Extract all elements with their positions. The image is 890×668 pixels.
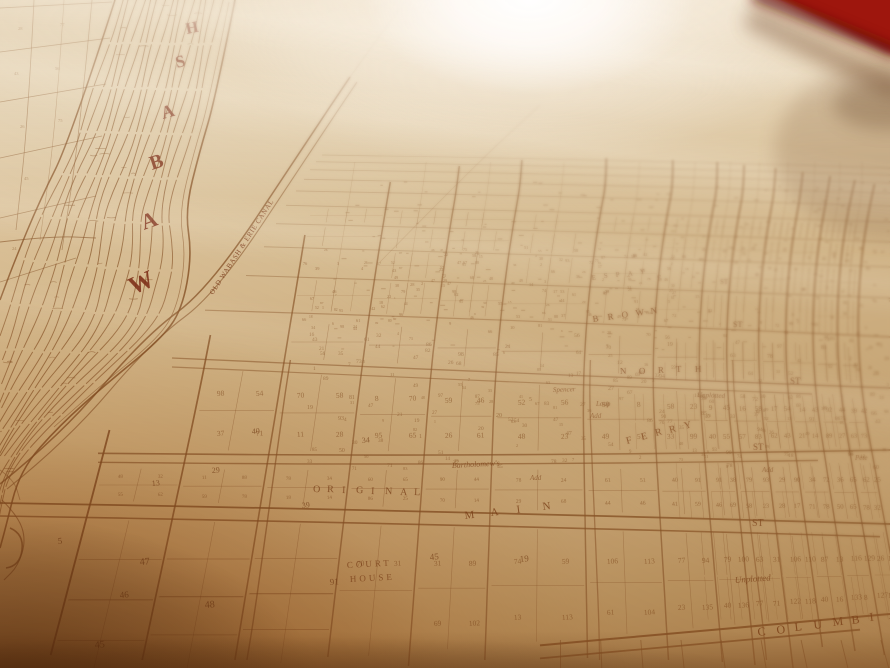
svg-text:Bartholomew's: Bartholomew's xyxy=(452,459,500,470)
svg-text:1: 1 xyxy=(313,366,316,372)
svg-text:6: 6 xyxy=(758,326,760,331)
svg-text:32: 32 xyxy=(874,503,882,512)
svg-text:40: 40 xyxy=(724,600,732,610)
svg-text:N: N xyxy=(542,500,551,513)
svg-text:51: 51 xyxy=(598,247,602,251)
svg-text:52: 52 xyxy=(873,250,877,254)
svg-text:E: E xyxy=(640,431,649,443)
svg-text:63: 63 xyxy=(546,381,550,385)
svg-text:81: 81 xyxy=(830,336,836,342)
svg-text:27: 27 xyxy=(432,410,438,416)
svg-text:34: 34 xyxy=(701,452,706,457)
svg-text:21: 21 xyxy=(397,412,403,418)
svg-text:74: 74 xyxy=(624,255,628,259)
svg-text:94: 94 xyxy=(757,427,763,433)
svg-text:40: 40 xyxy=(821,594,829,604)
svg-text:54: 54 xyxy=(462,386,466,390)
svg-text:93: 93 xyxy=(339,309,343,313)
svg-text:106: 106 xyxy=(607,556,619,566)
svg-text:16: 16 xyxy=(884,357,889,362)
svg-text:36: 36 xyxy=(701,396,707,402)
svg-text:14: 14 xyxy=(529,282,534,287)
svg-text:93: 93 xyxy=(712,448,717,453)
svg-text:7: 7 xyxy=(572,457,575,462)
svg-text:38: 38 xyxy=(730,477,737,484)
svg-text:77: 77 xyxy=(678,555,686,565)
svg-text:52: 52 xyxy=(764,416,769,421)
svg-text:16: 16 xyxy=(309,332,315,338)
svg-text:90: 90 xyxy=(661,414,667,420)
svg-text:99: 99 xyxy=(690,431,698,441)
svg-text:W: W xyxy=(635,307,645,318)
svg-text:40: 40 xyxy=(705,415,710,420)
svg-text:43: 43 xyxy=(812,407,820,414)
svg-text:8: 8 xyxy=(726,464,729,469)
svg-text:68: 68 xyxy=(561,499,567,505)
svg-text:14: 14 xyxy=(812,433,820,440)
svg-text:24: 24 xyxy=(12,246,17,251)
svg-text:49: 49 xyxy=(617,315,621,319)
svg-text:58: 58 xyxy=(574,248,578,253)
svg-text:28: 28 xyxy=(779,503,786,510)
svg-text:89: 89 xyxy=(826,433,833,440)
svg-text:85: 85 xyxy=(701,411,707,417)
svg-text:62: 62 xyxy=(771,432,779,439)
svg-text:Add: Add xyxy=(589,412,602,420)
svg-text:30: 30 xyxy=(671,284,675,288)
svg-text:21: 21 xyxy=(846,253,850,257)
svg-text:88: 88 xyxy=(475,260,479,265)
svg-text:28: 28 xyxy=(489,399,493,404)
svg-text:31: 31 xyxy=(394,558,402,568)
svg-text:ST: ST xyxy=(752,518,764,529)
svg-text:4: 4 xyxy=(535,254,537,258)
svg-text:9: 9 xyxy=(709,404,714,412)
svg-text:ST: ST xyxy=(733,320,742,329)
svg-text:M: M xyxy=(464,509,475,522)
svg-text:Add: Add xyxy=(529,474,542,482)
svg-text:84: 84 xyxy=(723,334,727,338)
svg-text:ST: ST xyxy=(753,442,764,452)
svg-text:52: 52 xyxy=(518,397,526,407)
svg-text:19: 19 xyxy=(814,323,818,327)
svg-text:2: 2 xyxy=(602,277,604,282)
svg-text:110: 110 xyxy=(805,554,817,564)
svg-text:39: 39 xyxy=(764,407,769,412)
svg-text:89: 89 xyxy=(627,376,632,381)
svg-text:67: 67 xyxy=(463,260,468,265)
svg-text:29: 29 xyxy=(516,499,522,505)
svg-text:94: 94 xyxy=(843,300,847,305)
svg-text:65: 65 xyxy=(403,478,409,483)
svg-text:58: 58 xyxy=(755,404,763,413)
svg-text:57: 57 xyxy=(739,432,747,441)
svg-text:88: 88 xyxy=(554,314,558,319)
svg-text:50: 50 xyxy=(605,289,609,294)
svg-text:26: 26 xyxy=(769,431,774,436)
svg-text:48: 48 xyxy=(802,287,806,291)
svg-text:30: 30 xyxy=(483,301,487,305)
svg-text:51: 51 xyxy=(524,245,528,250)
svg-text:54: 54 xyxy=(784,405,792,412)
svg-text:6: 6 xyxy=(561,329,563,333)
svg-text:52: 52 xyxy=(391,261,395,265)
svg-text:35: 35 xyxy=(416,288,420,292)
svg-text:73: 73 xyxy=(622,317,626,322)
svg-text:17: 17 xyxy=(377,262,381,266)
svg-text:26: 26 xyxy=(445,430,453,440)
svg-text:U: U xyxy=(813,617,824,632)
svg-text:46: 46 xyxy=(332,289,337,294)
svg-text:A: A xyxy=(490,506,499,519)
svg-text:75: 75 xyxy=(707,414,711,418)
svg-text:70: 70 xyxy=(409,393,417,403)
svg-text:17: 17 xyxy=(553,289,558,294)
svg-text:102: 102 xyxy=(469,618,481,628)
svg-text:51: 51 xyxy=(640,478,646,484)
svg-text:35: 35 xyxy=(338,351,344,357)
svg-text:79: 79 xyxy=(401,289,405,294)
svg-text:19: 19 xyxy=(519,553,529,564)
svg-text:17: 17 xyxy=(794,503,802,510)
svg-text:Loop: Loop xyxy=(595,400,611,408)
svg-text:73: 73 xyxy=(356,359,362,365)
svg-text:19: 19 xyxy=(868,345,873,350)
svg-text:45: 45 xyxy=(497,464,503,470)
svg-text:4: 4 xyxy=(808,256,810,260)
svg-text:100: 100 xyxy=(738,554,750,564)
svg-text:28: 28 xyxy=(628,288,632,292)
svg-text:11: 11 xyxy=(202,476,208,481)
svg-text:21: 21 xyxy=(319,346,325,352)
svg-text:68: 68 xyxy=(639,371,644,376)
svg-text:18: 18 xyxy=(286,496,292,501)
svg-text:83: 83 xyxy=(544,401,550,407)
svg-text:96: 96 xyxy=(628,278,632,282)
svg-text:55: 55 xyxy=(848,451,854,457)
svg-text:32: 32 xyxy=(559,258,563,262)
svg-text:61: 61 xyxy=(607,607,615,617)
svg-text:C: C xyxy=(757,624,767,639)
svg-text:55: 55 xyxy=(118,493,124,498)
svg-text:51: 51 xyxy=(438,450,444,456)
svg-text:72: 72 xyxy=(672,313,676,318)
svg-text:54: 54 xyxy=(514,418,520,424)
svg-text:68: 68 xyxy=(470,276,474,280)
svg-text:30: 30 xyxy=(821,406,826,411)
svg-text:23: 23 xyxy=(561,431,569,441)
svg-text:I: I xyxy=(516,504,521,516)
svg-text:17: 17 xyxy=(576,372,582,377)
svg-text:36: 36 xyxy=(576,275,580,279)
svg-text:25: 25 xyxy=(608,353,613,358)
svg-text:26: 26 xyxy=(546,303,550,307)
svg-text:91: 91 xyxy=(459,299,463,304)
svg-text:82: 82 xyxy=(454,292,459,297)
svg-text:46: 46 xyxy=(768,266,772,270)
svg-text:60: 60 xyxy=(709,399,715,405)
svg-text:46: 46 xyxy=(431,248,435,252)
svg-text:97: 97 xyxy=(619,396,624,401)
svg-text:13: 13 xyxy=(441,284,445,288)
svg-text:8: 8 xyxy=(833,254,836,259)
svg-text:49: 49 xyxy=(413,383,419,389)
svg-text:11: 11 xyxy=(297,429,305,438)
svg-text:89: 89 xyxy=(469,558,477,568)
svg-text:78: 78 xyxy=(830,316,834,320)
svg-text:N: N xyxy=(385,486,393,497)
svg-text:1: 1 xyxy=(434,420,436,424)
svg-text:39: 39 xyxy=(851,408,858,415)
svg-text:74: 74 xyxy=(514,556,522,566)
svg-text:16: 16 xyxy=(882,447,887,452)
svg-text:25: 25 xyxy=(403,497,409,502)
svg-text:92: 92 xyxy=(828,365,833,370)
svg-text:15: 15 xyxy=(508,300,512,304)
svg-text:56: 56 xyxy=(320,351,326,357)
svg-text:31: 31 xyxy=(627,285,631,290)
svg-text:81: 81 xyxy=(538,323,542,328)
svg-text:18: 18 xyxy=(309,315,313,319)
svg-text:44: 44 xyxy=(474,477,480,483)
svg-text:38: 38 xyxy=(395,284,399,288)
svg-text:34: 34 xyxy=(361,435,370,445)
svg-text:13: 13 xyxy=(151,478,160,488)
svg-text:66: 66 xyxy=(551,269,555,274)
svg-text:60: 60 xyxy=(756,409,760,414)
svg-text:13: 13 xyxy=(568,373,574,379)
svg-text:1: 1 xyxy=(394,296,396,300)
svg-text:N: N xyxy=(620,366,627,376)
svg-text:14: 14 xyxy=(327,496,333,501)
svg-text:69: 69 xyxy=(434,618,442,628)
svg-text:6: 6 xyxy=(707,449,709,454)
svg-text:14: 14 xyxy=(758,265,762,269)
svg-text:47: 47 xyxy=(735,340,741,346)
svg-text:93: 93 xyxy=(565,258,570,263)
svg-text:81: 81 xyxy=(821,345,827,351)
svg-text:23: 23 xyxy=(763,503,770,510)
svg-text:65: 65 xyxy=(850,476,858,483)
svg-text:48: 48 xyxy=(118,475,124,480)
svg-text:91: 91 xyxy=(634,299,638,304)
svg-text:I: I xyxy=(371,486,375,497)
svg-text:78: 78 xyxy=(286,477,292,482)
svg-text:N: N xyxy=(650,305,658,316)
svg-text:43: 43 xyxy=(822,257,826,261)
svg-text:2: 2 xyxy=(639,456,642,461)
svg-text:74: 74 xyxy=(542,288,546,293)
svg-text:85: 85 xyxy=(312,448,317,453)
svg-text:86: 86 xyxy=(835,416,841,422)
svg-text:48: 48 xyxy=(518,431,526,441)
svg-text:40: 40 xyxy=(679,441,683,446)
svg-text:A: A xyxy=(627,269,633,278)
svg-text:53: 53 xyxy=(560,289,565,294)
svg-text:86: 86 xyxy=(368,497,374,502)
svg-text:40: 40 xyxy=(511,281,515,285)
svg-text:135: 135 xyxy=(702,602,714,612)
svg-text:76: 76 xyxy=(303,261,307,266)
svg-text:Pete: Pete xyxy=(854,454,867,462)
svg-text:70: 70 xyxy=(606,345,612,351)
svg-text:42: 42 xyxy=(872,298,876,302)
svg-text:15: 15 xyxy=(559,422,563,427)
svg-text:52: 52 xyxy=(315,306,319,310)
svg-text:82: 82 xyxy=(856,368,860,372)
svg-text:63: 63 xyxy=(730,353,736,359)
svg-text:23: 23 xyxy=(483,279,487,283)
svg-text:67: 67 xyxy=(310,297,314,301)
svg-text:26: 26 xyxy=(324,248,328,252)
svg-text:113: 113 xyxy=(644,556,656,566)
svg-text:70: 70 xyxy=(646,332,651,337)
svg-text:27: 27 xyxy=(580,402,586,408)
svg-text:45: 45 xyxy=(702,248,706,252)
svg-text:88: 88 xyxy=(242,476,248,481)
svg-text:98: 98 xyxy=(217,388,225,398)
svg-text:Y: Y xyxy=(683,419,693,431)
svg-text:67: 67 xyxy=(627,390,633,396)
svg-text:31: 31 xyxy=(434,558,442,568)
svg-text:33: 33 xyxy=(667,431,675,441)
svg-text:COURT: COURT xyxy=(347,558,392,570)
svg-text:89: 89 xyxy=(859,246,863,251)
svg-text:42: 42 xyxy=(643,252,647,257)
svg-text:47: 47 xyxy=(457,260,462,265)
svg-text:30: 30 xyxy=(539,256,543,261)
svg-text:78: 78 xyxy=(767,354,773,360)
svg-text:25: 25 xyxy=(783,248,787,252)
svg-text:56: 56 xyxy=(762,429,766,433)
svg-text:81: 81 xyxy=(708,308,712,313)
svg-text:26: 26 xyxy=(364,261,368,265)
svg-text:66: 66 xyxy=(871,411,877,417)
svg-text:37: 37 xyxy=(561,313,566,318)
svg-text:9: 9 xyxy=(629,450,632,455)
svg-text:50: 50 xyxy=(602,399,610,409)
svg-text:31: 31 xyxy=(350,400,354,405)
svg-text:87: 87 xyxy=(460,298,464,302)
svg-text:S: S xyxy=(603,272,608,280)
svg-text:91: 91 xyxy=(692,275,696,279)
svg-text:24: 24 xyxy=(561,478,567,484)
svg-text:28: 28 xyxy=(410,282,415,287)
svg-text:16: 16 xyxy=(644,362,648,367)
svg-text:127: 127 xyxy=(877,590,889,600)
svg-text:33: 33 xyxy=(488,389,492,393)
svg-text:70: 70 xyxy=(440,498,446,504)
svg-text:34: 34 xyxy=(824,334,829,339)
svg-text:28: 28 xyxy=(18,26,23,31)
svg-text:6: 6 xyxy=(559,299,561,303)
svg-text:G: G xyxy=(356,485,364,496)
svg-text:63: 63 xyxy=(756,554,764,564)
svg-text:55: 55 xyxy=(723,432,731,441)
svg-text:L: L xyxy=(794,619,803,634)
svg-text:14: 14 xyxy=(445,457,450,462)
svg-text:81: 81 xyxy=(598,261,602,265)
svg-text:49: 49 xyxy=(602,431,610,441)
svg-text:78: 78 xyxy=(516,478,522,484)
svg-text:53: 53 xyxy=(508,417,514,423)
svg-text:77: 77 xyxy=(667,419,673,425)
svg-text:32: 32 xyxy=(376,333,382,339)
svg-text:87: 87 xyxy=(320,301,324,305)
svg-text:43: 43 xyxy=(392,268,396,273)
svg-text:11: 11 xyxy=(390,372,395,377)
svg-text:44: 44 xyxy=(404,302,408,306)
svg-text:78: 78 xyxy=(242,495,248,500)
svg-text:2: 2 xyxy=(516,443,518,448)
svg-text:46: 46 xyxy=(716,502,723,509)
svg-text:66: 66 xyxy=(302,317,307,322)
svg-text:7: 7 xyxy=(335,293,337,297)
svg-text:8: 8 xyxy=(760,321,762,325)
svg-text:77: 77 xyxy=(60,22,65,27)
svg-text:97: 97 xyxy=(399,251,403,255)
svg-text:60: 60 xyxy=(368,478,374,483)
svg-text:36: 36 xyxy=(587,408,592,413)
svg-text:78: 78 xyxy=(727,463,733,469)
svg-text:22: 22 xyxy=(444,252,448,257)
svg-text:14: 14 xyxy=(879,396,884,401)
svg-text:95: 95 xyxy=(641,268,645,273)
svg-text:67: 67 xyxy=(664,318,669,323)
svg-text:R: R xyxy=(668,423,678,435)
svg-text:75: 75 xyxy=(475,401,480,406)
svg-text:122: 122 xyxy=(790,596,802,606)
svg-text:86: 86 xyxy=(418,461,424,466)
svg-text:98: 98 xyxy=(452,289,456,294)
svg-text:P: P xyxy=(615,271,620,279)
svg-text:45: 45 xyxy=(429,551,439,562)
svg-text:39: 39 xyxy=(823,406,827,410)
svg-text:16: 16 xyxy=(836,594,844,604)
svg-text:22: 22 xyxy=(387,294,391,299)
svg-text:5: 5 xyxy=(826,285,829,290)
svg-text:81: 81 xyxy=(633,254,637,258)
svg-text:34: 34 xyxy=(776,370,780,374)
svg-text:50: 50 xyxy=(631,255,635,259)
svg-text:45: 45 xyxy=(723,403,731,412)
svg-text:82: 82 xyxy=(854,362,858,367)
svg-text:25: 25 xyxy=(874,475,882,484)
svg-text:25: 25 xyxy=(787,276,791,280)
svg-text:40: 40 xyxy=(672,478,678,484)
svg-text:61: 61 xyxy=(572,292,576,297)
svg-text:116: 116 xyxy=(851,553,863,563)
svg-text:37: 37 xyxy=(841,290,845,294)
svg-text:10: 10 xyxy=(510,325,515,330)
svg-text:34: 34 xyxy=(311,325,316,330)
svg-text:69: 69 xyxy=(730,502,737,509)
svg-text:26: 26 xyxy=(868,366,872,370)
svg-text:75: 75 xyxy=(784,452,790,458)
svg-text:20: 20 xyxy=(496,413,502,419)
svg-text:43: 43 xyxy=(875,419,881,425)
svg-text:12: 12 xyxy=(860,454,866,460)
svg-text:79: 79 xyxy=(746,477,753,484)
svg-text:20: 20 xyxy=(607,330,611,335)
svg-text:5: 5 xyxy=(668,299,670,304)
svg-text:13: 13 xyxy=(694,393,700,399)
svg-text:59: 59 xyxy=(562,556,570,566)
svg-text:83: 83 xyxy=(755,432,763,441)
svg-text:17: 17 xyxy=(598,265,602,269)
svg-text:29: 29 xyxy=(582,300,586,304)
svg-text:44: 44 xyxy=(353,327,357,331)
